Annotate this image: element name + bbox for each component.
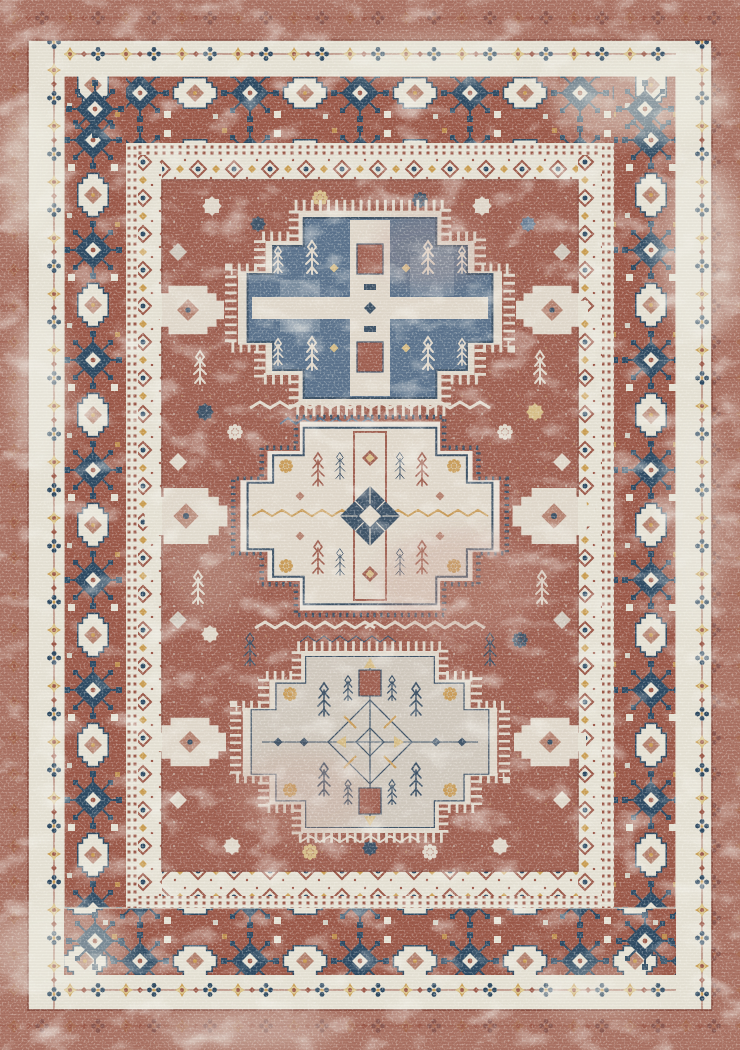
weave-texture [0,0,740,1050]
rug-product-photo [0,0,740,1050]
rug-image [0,0,740,1050]
distress-overlay [0,0,740,1050]
